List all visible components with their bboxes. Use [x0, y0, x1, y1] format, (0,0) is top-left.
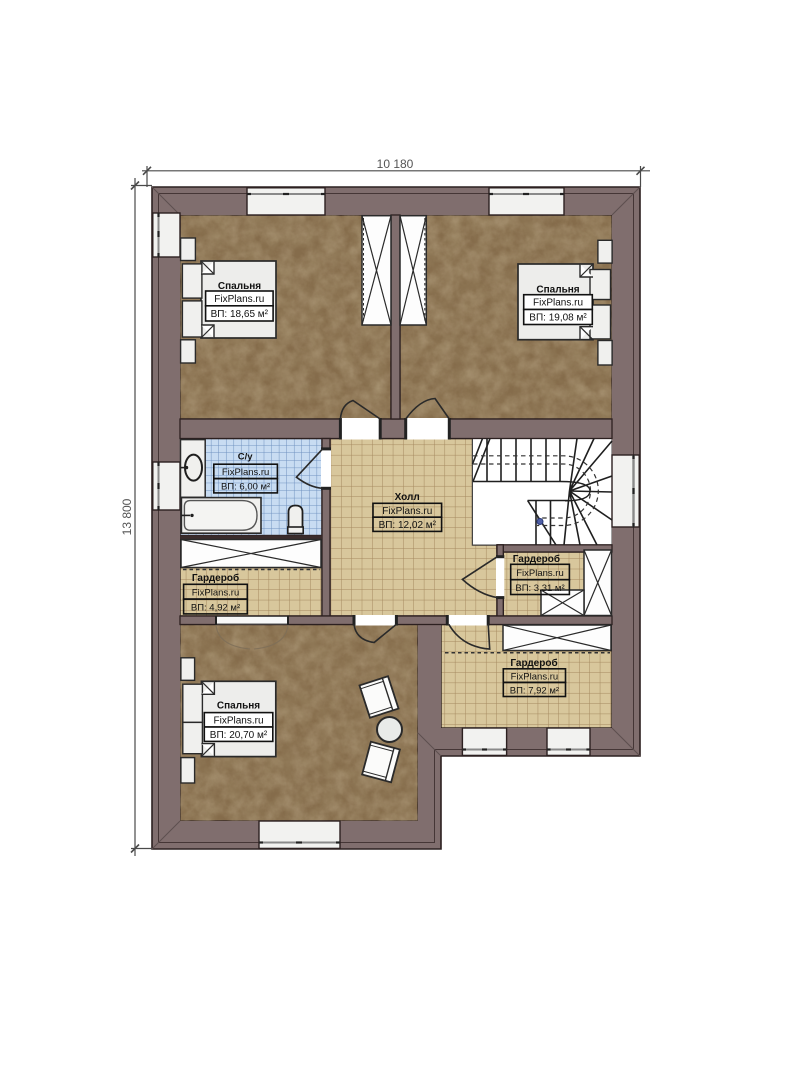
- svg-text:FixPlans.ru: FixPlans.ru: [516, 568, 564, 579]
- svg-text:FixPlans.ru: FixPlans.ru: [213, 715, 263, 726]
- svg-text:ВП: 19,08 м²: ВП: 19,08 м²: [529, 313, 587, 324]
- svg-text:FixPlans.ru: FixPlans.ru: [192, 587, 240, 598]
- svg-text:Холл: Холл: [395, 492, 420, 503]
- svg-text:FixPlans.ru: FixPlans.ru: [214, 294, 264, 305]
- svg-text:ВП: 6,00 м²: ВП: 6,00 м²: [221, 482, 270, 493]
- svg-text:ВП: 3,31 м²: ВП: 3,31 м²: [515, 583, 564, 594]
- svg-text:ВП: 7,92 м²: ВП: 7,92 м²: [510, 685, 559, 696]
- svg-text:FixPlans.ru: FixPlans.ru: [382, 506, 432, 517]
- svg-text:FixPlans.ru: FixPlans.ru: [222, 467, 270, 478]
- svg-text:С/у: С/у: [238, 452, 254, 463]
- svg-text:10 180: 10 180: [377, 157, 414, 171]
- svg-text:Гардероб: Гардероб: [513, 553, 560, 565]
- svg-text:FixPlans.ru: FixPlans.ru: [511, 671, 559, 682]
- svg-text:ВП: 20,70 м²: ВП: 20,70 м²: [210, 730, 268, 741]
- svg-text:FixPlans.ru: FixPlans.ru: [533, 298, 583, 309]
- svg-text:ВП: 4,92 м²: ВП: 4,92 м²: [191, 602, 240, 613]
- svg-text:Спальня: Спальня: [217, 701, 260, 712]
- svg-text:Гардероб: Гардероб: [192, 572, 239, 584]
- svg-text:Спальня: Спальня: [536, 285, 579, 296]
- svg-text:Гардероб: Гардероб: [510, 657, 557, 669]
- svg-text:ВП: 12,02 м²: ВП: 12,02 м²: [379, 520, 437, 531]
- svg-text:13 800: 13 800: [120, 498, 134, 535]
- svg-text:ВП: 18,65 м²: ВП: 18,65 м²: [211, 309, 269, 320]
